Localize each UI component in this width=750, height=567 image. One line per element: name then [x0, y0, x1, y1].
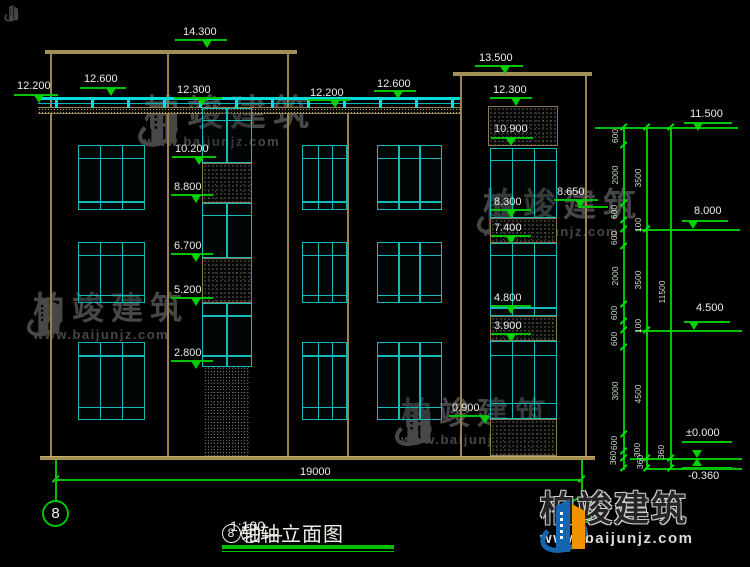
elevation-marker-label: 7.400: [494, 222, 522, 234]
dimension-value: 11500: [657, 280, 667, 303]
elevation-marker-triangle: [197, 98, 207, 106]
elevation-marker-triangle: [34, 95, 44, 103]
window: [202, 108, 252, 163]
dimension-chain-line: [646, 127, 648, 470]
elevation-marker-label: 4.800: [494, 292, 522, 304]
window-transom: [378, 407, 441, 409]
hatch-panel: [204, 367, 250, 456]
axis-bubble: 8: [42, 500, 69, 527]
window: [377, 145, 442, 210]
dimension-value: 100: [633, 319, 643, 333]
elevation-marker-triangle: [393, 91, 403, 99]
window-transom: [378, 355, 441, 357]
dimension-value: 600: [609, 306, 619, 320]
elevation-marker-triangle: [692, 450, 702, 458]
window-mullion: [226, 204, 228, 257]
elevation-marker-label: 10.200: [175, 143, 209, 155]
dimension-chain-line: [623, 127, 625, 470]
window-mullion: [512, 342, 514, 418]
elevation-marker-label: 3.900: [494, 320, 522, 332]
elevation-marker-line: [682, 441, 732, 443]
railing-post: [127, 100, 130, 108]
elevation-marker-triangle: [106, 88, 116, 96]
hatch-panel: [490, 419, 557, 456]
elevation-marker-line: [308, 99, 350, 101]
elevation-marker-label: 2.800: [174, 347, 202, 359]
elevation-marker-triangle: [688, 221, 698, 229]
railing-post: [163, 100, 166, 108]
window-mullion: [419, 243, 421, 302]
window-transom: [303, 255, 346, 257]
window-transom: [491, 355, 556, 357]
window-mullion: [318, 146, 320, 209]
railing-post: [235, 100, 238, 108]
elevation-marker-label: 0.900: [452, 402, 480, 414]
dimension-value: 600: [609, 205, 619, 219]
railing-post: [415, 100, 418, 108]
level-line: [636, 330, 742, 332]
wall-line: [287, 54, 289, 456]
window-transom: [303, 201, 346, 203]
window-mullion: [122, 146, 124, 209]
window-transom: [303, 158, 346, 160]
elevation-marker-triangle: [191, 298, 201, 306]
window-transom: [378, 201, 441, 203]
elevation-marker-triangle: [500, 66, 510, 74]
elevation-marker-label: 12.300: [493, 84, 527, 96]
wall-line: [347, 112, 349, 456]
axis-line: [55, 460, 57, 501]
elevation-marker-label: 8.800: [174, 181, 202, 193]
window-transom: [303, 295, 346, 297]
elevation-marker-triangle: [480, 416, 490, 424]
window-mullion: [332, 146, 334, 209]
window-transom: [491, 307, 556, 309]
window-transom: [491, 160, 556, 162]
window-transom: [303, 355, 346, 357]
window-mullion: [419, 146, 421, 209]
window-transom: [303, 407, 346, 409]
window-transom: [203, 215, 251, 217]
dimension-value: 3000: [610, 382, 620, 401]
title-underline-thick: [222, 545, 394, 549]
dimension-value: 4500: [633, 385, 643, 404]
drawing-title: 8轴—1轴立面图1:100: [222, 518, 265, 536]
window-transom: [79, 158, 144, 160]
window-mullion: [122, 243, 124, 302]
elevation-marker-triangle: [692, 458, 702, 466]
elevation-marker-label: 12.600: [84, 73, 118, 85]
elevation-marker-label: 12.600: [377, 78, 411, 90]
elevation-marker-label: 10.900: [494, 123, 528, 135]
railing-mid-rail: [38, 103, 460, 104]
dimension-value: 3500: [633, 169, 643, 188]
dimension-value: 3500: [633, 271, 643, 290]
elevation-marker-label: ±0.000: [686, 427, 720, 439]
level-line: [636, 229, 740, 231]
window-transom: [79, 255, 144, 257]
railing-post: [307, 100, 310, 108]
window-transom: [203, 355, 251, 357]
elevation-marker-triangle: [575, 200, 585, 208]
elevation-marker-triangle: [506, 306, 516, 314]
railing-post: [55, 100, 58, 108]
railing-post: [271, 100, 274, 108]
window-mullion: [534, 342, 536, 418]
wall-line: [585, 76, 587, 456]
elevation-marker-triangle: [693, 123, 703, 131]
window-transom: [203, 120, 251, 122]
elevation-marker-line: [684, 122, 732, 124]
roof-slab-line: [453, 72, 592, 76]
elevation-marker-triangle: [506, 236, 516, 244]
elevation-marker-label: -0.360: [688, 470, 719, 482]
elevation-marker-label: 12.300: [177, 84, 211, 96]
window: [78, 342, 145, 420]
elevation-marker-triangle: [689, 322, 699, 330]
elevation-marker-line: [475, 65, 523, 67]
railing-post: [343, 100, 346, 108]
elevation-marker-triangle: [506, 334, 516, 342]
elevation-marker-line: [175, 39, 227, 41]
elevation-marker-label: 14.300: [183, 26, 217, 38]
window-transom: [203, 315, 251, 317]
railing-post: [451, 100, 454, 108]
window-transom: [79, 201, 144, 203]
window-transom: [378, 295, 441, 297]
window: [490, 341, 557, 419]
roof-slab-line: [45, 50, 297, 54]
dimension-chain-line: [670, 127, 672, 470]
dimension-value: 100: [633, 218, 643, 232]
elevation-marker-triangle: [194, 157, 204, 165]
elevation-marker-line: [80, 87, 126, 89]
elevation-marker-label: 11.500: [690, 108, 723, 120]
window: [377, 242, 442, 303]
window: [302, 242, 347, 303]
elevation-marker-label: 12.200: [310, 87, 344, 99]
window-mullion: [226, 109, 228, 162]
elevation-marker-triangle: [191, 254, 201, 262]
window-mullion: [332, 243, 334, 302]
window-mullion: [398, 146, 400, 209]
overall-dimension-line: [55, 479, 581, 481]
title-underline-thin: [222, 551, 394, 552]
window-transom: [79, 295, 144, 297]
elevation-marker-triangle: [506, 138, 516, 146]
brand-building-icon: [540, 492, 592, 558]
window-transom: [378, 158, 441, 160]
dimension-value: 360: [656, 445, 666, 459]
elevation-marker-label: 5.200: [174, 284, 202, 296]
brand-logo: 柏竣建筑 www.baijunjz.com: [540, 492, 693, 547]
elevation-marker-label: 8.000: [694, 205, 722, 217]
elevation-marker-label: 8.650: [557, 186, 585, 198]
window-mullion: [100, 146, 102, 209]
window: [202, 203, 252, 258]
dimension-value: 360: [608, 451, 618, 465]
window-transom: [491, 255, 556, 257]
title-axis8-bubble: 8: [222, 524, 241, 543]
elevation-marker-label: 12.200: [17, 80, 51, 92]
dimension-value: 2000: [610, 267, 620, 286]
dimension-tick: [620, 464, 627, 471]
elevation-marker-label: 8.300: [494, 196, 522, 208]
window-transom: [79, 355, 144, 357]
wall-line: [167, 54, 169, 456]
elevation-marker-label: 13.500: [479, 52, 513, 64]
window-transom: [79, 407, 144, 409]
wall-line: [460, 76, 462, 456]
railing-post: [379, 100, 382, 108]
elevation-marker-triangle: [191, 361, 201, 369]
elevation-drawing-canvas: 8轴—1轴立面图1:100 柏竣建筑 www.baijunjz.com 柏竣建筑…: [0, 0, 750, 567]
elevation-marker-line: [682, 467, 732, 469]
window: [78, 242, 145, 303]
dimension-value: 600: [610, 129, 620, 143]
window-mullion: [100, 243, 102, 302]
window: [302, 342, 347, 420]
window-transom: [491, 403, 556, 405]
hatch-panel: [202, 163, 252, 203]
elevation-marker-triangle: [330, 100, 340, 108]
elevation-marker-triangle: [506, 210, 516, 218]
window-transom: [378, 255, 441, 257]
dimension-value: 600: [609, 436, 619, 450]
elevation-marker-triangle: [511, 98, 521, 106]
railing-post: [91, 100, 94, 108]
window: [302, 145, 347, 210]
dimension-value: 2000: [610, 166, 620, 185]
window: [202, 303, 252, 367]
wall-line: [50, 54, 52, 456]
window: [78, 145, 145, 210]
overall-dimension-value: 19000: [300, 466, 331, 478]
title-text-2: 轴立面图: [260, 518, 344, 547]
dimension-value: 360: [635, 455, 645, 469]
dimension-value: 600: [609, 332, 619, 346]
elevation-marker-triangle: [202, 40, 212, 48]
elevation-marker-label: 6.700: [174, 240, 202, 252]
dimension-value: 600: [609, 231, 619, 245]
window-mullion: [318, 243, 320, 302]
window: [377, 342, 442, 420]
elevation-marker-triangle: [191, 195, 201, 203]
ground-line: [40, 456, 595, 460]
window-mullion: [398, 243, 400, 302]
elevation-marker-label: 4.500: [696, 302, 724, 314]
